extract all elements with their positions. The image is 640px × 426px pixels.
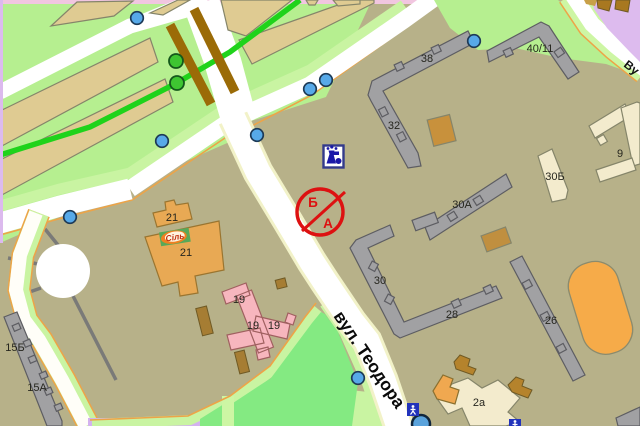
svg-text:21: 21 (180, 247, 192, 259)
svg-text:26: 26 (545, 315, 557, 327)
svg-text:2а: 2а (473, 397, 486, 409)
svg-text:38: 38 (421, 53, 433, 65)
svg-text:32: 32 (388, 120, 400, 132)
svg-text:15А: 15А (27, 382, 47, 394)
svg-text:30А: 30А (452, 199, 472, 211)
svg-text:19: 19 (247, 320, 259, 332)
svg-text:15Б: 15Б (5, 342, 24, 354)
svg-text:Б: Б (308, 195, 318, 210)
svg-text:9: 9 (617, 148, 623, 160)
svg-text:19: 19 (233, 294, 245, 306)
svg-text:28: 28 (446, 309, 458, 321)
svg-text:30: 30 (374, 275, 386, 287)
svg-text:21: 21 (166, 212, 178, 224)
svg-text:19: 19 (268, 320, 280, 332)
svg-text:А: А (323, 216, 333, 231)
svg-text:40/11: 40/11 (527, 43, 554, 55)
svg-text:30Б: 30Б (545, 171, 564, 183)
